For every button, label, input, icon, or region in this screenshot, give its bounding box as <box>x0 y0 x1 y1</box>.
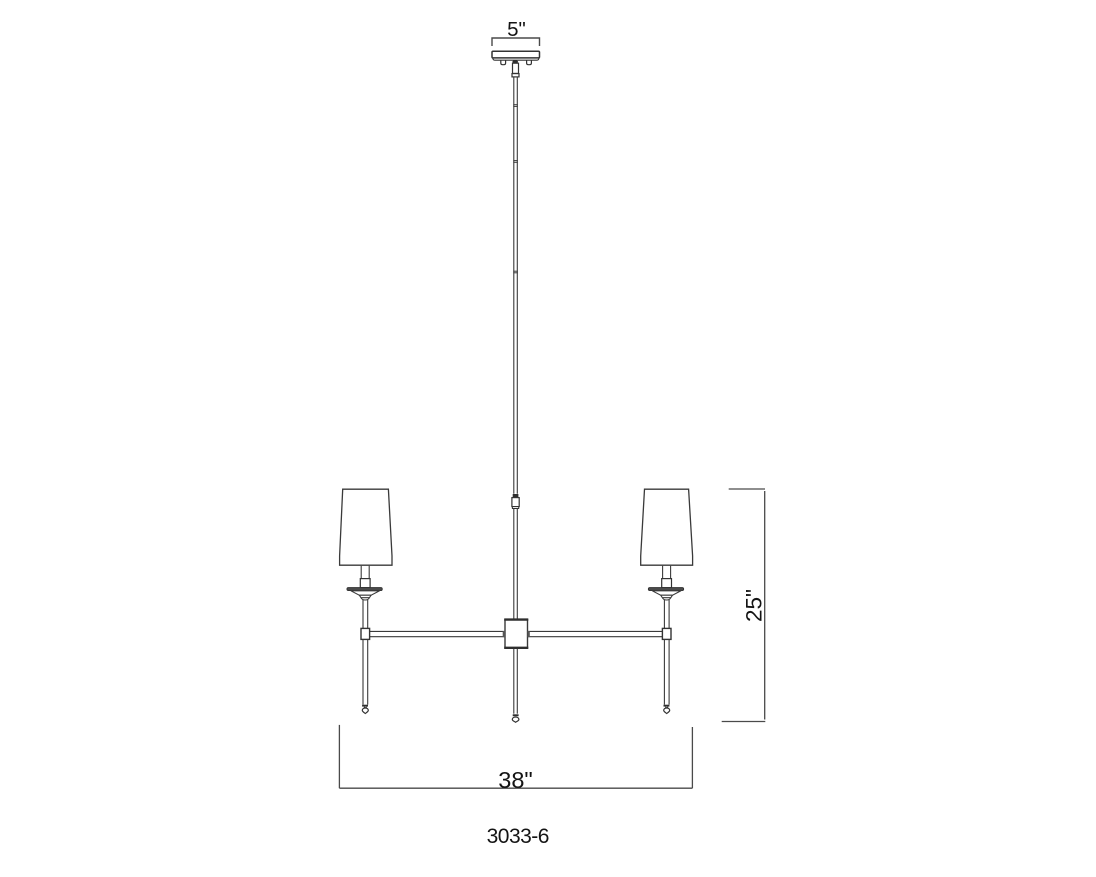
svg-text:3033-6: 3033-6 <box>487 825 549 848</box>
svg-text:25": 25" <box>742 589 767 622</box>
svg-text:38": 38" <box>498 767 532 793</box>
